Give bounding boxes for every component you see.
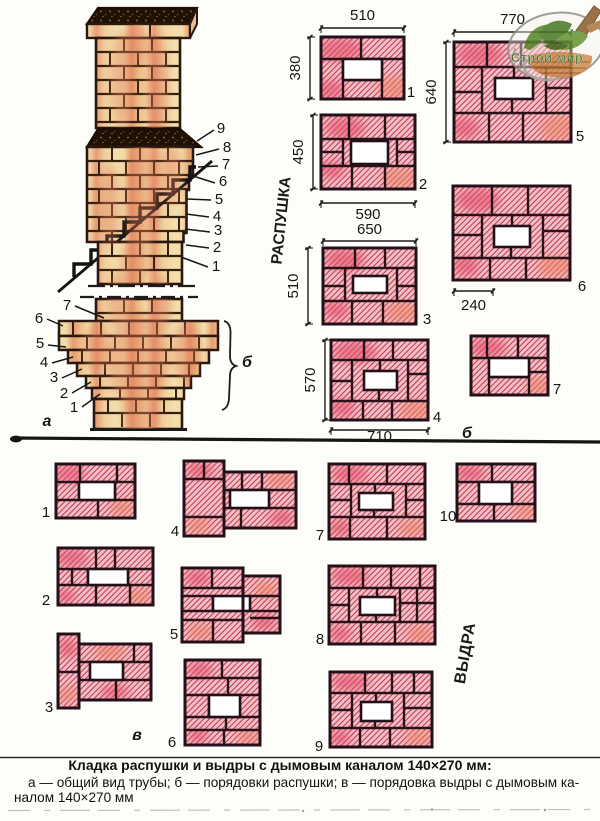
svg-text:1: 1 [42, 504, 50, 521]
svg-text:5: 5 [36, 335, 44, 352]
svg-text:4: 4 [40, 354, 48, 371]
svg-text:налом 140×270 мм: налом 140×270 мм [14, 790, 134, 805]
svg-text:640: 640 [423, 79, 440, 104]
svg-text:380: 380 [287, 55, 304, 80]
svg-text:6: 6 [219, 173, 227, 190]
svg-text:а: а [43, 413, 52, 430]
svg-text:б: б [462, 425, 473, 442]
svg-text:570: 570 [302, 367, 319, 392]
svg-text:2: 2 [42, 592, 50, 609]
svg-text:3: 3 [423, 311, 431, 328]
svg-text:510: 510 [350, 7, 375, 24]
svg-text:450: 450 [290, 139, 307, 164]
svg-text:4: 4 [171, 523, 179, 540]
svg-text:3: 3 [45, 699, 53, 716]
svg-text:510: 510 [285, 273, 302, 298]
svg-text:7: 7 [316, 527, 324, 544]
svg-text:1: 1 [70, 399, 78, 416]
svg-text:3: 3 [50, 369, 58, 386]
svg-text:3: 3 [214, 222, 222, 239]
svg-text:2: 2 [213, 239, 221, 256]
svg-text:6: 6 [35, 310, 43, 327]
svg-text:Кладка распушки и выдры с дымо: Кладка распушки и выдры с дымовым канало… [68, 757, 491, 773]
svg-text:9: 9 [315, 738, 323, 755]
svg-text:5: 5 [576, 128, 584, 145]
svg-text:8: 8 [223, 139, 231, 156]
svg-text:8: 8 [316, 631, 324, 648]
svg-text:9: 9 [217, 120, 225, 137]
svg-text:6: 6 [168, 734, 176, 751]
svg-text:2: 2 [60, 385, 68, 402]
svg-text:710: 710 [367, 428, 392, 445]
svg-text:650: 650 [357, 221, 382, 238]
svg-text:6: 6 [578, 278, 586, 295]
svg-text:1: 1 [407, 84, 415, 101]
svg-text:7: 7 [63, 297, 71, 314]
svg-text:5: 5 [170, 626, 178, 643]
svg-text:1: 1 [212, 258, 220, 275]
svg-text:7: 7 [222, 156, 230, 173]
svg-text:2: 2 [419, 176, 427, 193]
svg-text:5: 5 [215, 191, 223, 208]
svg-text:Строй мир: Строй мир [511, 50, 583, 65]
svg-text:240: 240 [461, 297, 486, 314]
svg-text:4: 4 [433, 409, 441, 426]
svg-text:10: 10 [440, 508, 457, 525]
svg-text:7: 7 [553, 381, 561, 398]
svg-text:а — общий вид трубы; б — поряд: а — общий вид трубы; б — порядовки распу… [28, 775, 579, 790]
svg-text:в: в [132, 727, 142, 744]
svg-text:б: б [242, 354, 253, 371]
